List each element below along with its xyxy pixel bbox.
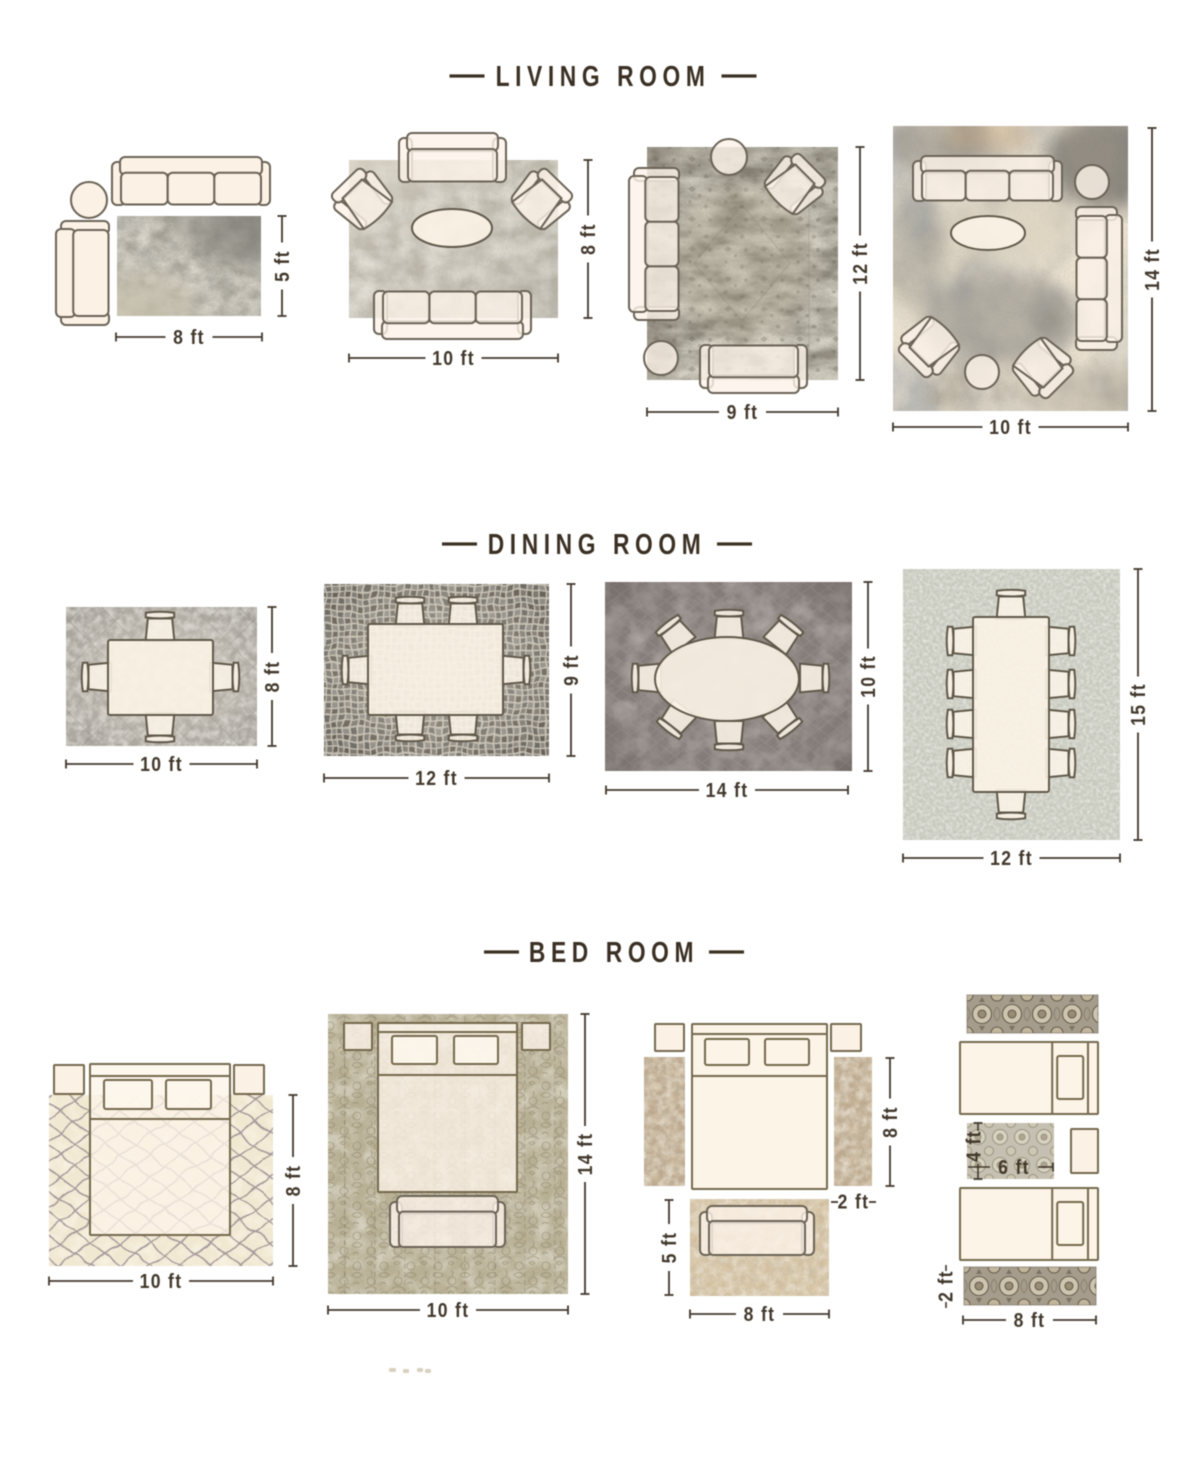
- svg-text:12 ft: 12 ft: [849, 242, 871, 285]
- svg-text:6 ft: 6 ft: [998, 1156, 1030, 1178]
- svg-text:LIVING ROOM: LIVING ROOM: [496, 62, 711, 93]
- svg-text:8 ft: 8 ft: [173, 326, 205, 348]
- svg-text:8 ft: 8 ft: [577, 223, 599, 255]
- svg-text:12 ft: 12 ft: [415, 767, 458, 789]
- svg-text:10 ft: 10 ft: [140, 1270, 183, 1292]
- svg-text:10 ft: 10 ft: [427, 1299, 470, 1321]
- svg-text:10 ft: 10 ft: [857, 655, 879, 698]
- svg-text:9 ft: 9 ft: [560, 654, 582, 686]
- svg-text:4 ft: 4 ft: [962, 1130, 984, 1162]
- svg-text:14 ft: 14 ft: [574, 1133, 596, 1176]
- svg-text:15 ft: 15 ft: [1127, 683, 1149, 726]
- svg-text:10 ft: 10 ft: [989, 416, 1032, 438]
- svg-text:14 ft: 14 ft: [706, 779, 749, 801]
- svg-text:10 ft: 10 ft: [432, 347, 475, 369]
- svg-text:8 ft: 8 ft: [282, 1165, 304, 1197]
- svg-text:BED ROOM: BED ROOM: [529, 938, 699, 969]
- svg-text:8 ft: 8 ft: [879, 1106, 901, 1138]
- svg-text:2 ft: 2 ft: [934, 1270, 956, 1302]
- svg-text:8 ft: 8 ft: [744, 1303, 776, 1325]
- svg-text:9 ft: 9 ft: [727, 401, 759, 423]
- svg-text:5 ft: 5 ft: [658, 1232, 680, 1264]
- svg-text:5 ft: 5 ft: [271, 250, 293, 282]
- svg-text:2 ft: 2 ft: [838, 1190, 870, 1212]
- svg-text:8 ft: 8 ft: [261, 661, 283, 693]
- svg-text:10 ft: 10 ft: [140, 753, 183, 775]
- svg-text:12 ft: 12 ft: [990, 847, 1033, 869]
- svg-text:14 ft: 14 ft: [1141, 248, 1163, 291]
- svg-text:8 ft: 8 ft: [1014, 1309, 1046, 1331]
- svg-text:DINING ROOM: DINING ROOM: [488, 530, 707, 561]
